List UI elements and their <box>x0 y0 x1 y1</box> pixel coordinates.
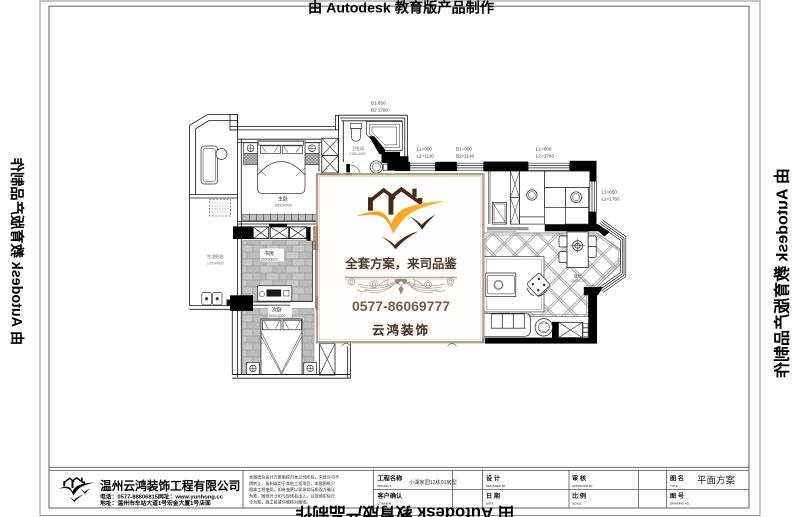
svg-text:全套方案，来司品鉴: 全套方案，来司品鉴 <box>344 256 457 271</box>
svg-text:2600x3000: 2600x3000 <box>261 258 278 262</box>
svg-text:次卧: 次卧 <box>272 307 282 314</box>
svg-text:限本工程使用。如有变更以现场实际和双方确认: 限本工程使用。如有变更以现场实际和双方确认 <box>249 486 335 492</box>
svg-text:温州云鸿装饰工程有限公司: 温州云鸿装饰工程有限公司 <box>100 479 240 493</box>
svg-text:由 Autodesk 教育版产品制作: 由 Autodesk 教育版产品制作 <box>308 0 494 17</box>
svg-text:APPROVED BY: APPROVED BY <box>572 484 593 488</box>
svg-text:由 Autodesk 教育版产品制作: 由 Autodesk 教育版产品制作 <box>773 168 792 378</box>
svg-text:B2 1780: B2 1780 <box>371 108 389 113</box>
svg-text:1300x4000: 1300x4000 <box>207 262 224 266</box>
svg-text:小湖家园12栋01房型: 小湖家园12栋01房型 <box>409 478 457 486</box>
svg-text:本图纸及设计方案版权归本公司所有，未经许可不: 本图纸及设计方案版权归本公司所有，未经许可不 <box>249 474 339 480</box>
svg-text:平面方案: 平面方案 <box>697 475 736 487</box>
svg-text:L2=1760: L2=1760 <box>602 197 620 202</box>
svg-text:2900x3300: 2900x3300 <box>269 314 286 318</box>
svg-text:2150x1600: 2150x1600 <box>350 152 366 156</box>
svg-text:书房: 书房 <box>264 250 274 257</box>
svg-text:L1=900: L1=900 <box>417 147 433 152</box>
svg-text:图 名: 图 名 <box>670 475 684 483</box>
svg-text:客户确认: 客户确认 <box>377 492 404 500</box>
svg-text:日 期: 日 期 <box>486 492 500 500</box>
svg-text:比 例: 比 例 <box>572 492 586 500</box>
svg-text:B1=900: B1=900 <box>456 147 472 152</box>
svg-text:工程名称: 工程名称 <box>378 475 404 483</box>
svg-text:主卧: 主卧 <box>278 196 288 203</box>
svg-text:为准，图纸尺寸如与现场有出入，以现场实际尺: 为准，图纸尺寸如与现场有出入，以现场实际尺 <box>249 492 335 498</box>
svg-text:PROJECT: PROJECT <box>378 484 392 488</box>
svg-text:DESIGNED BY: DESIGNED BY <box>486 484 506 488</box>
svg-text:生活阳台: 生活阳台 <box>207 253 224 260</box>
svg-text:由 Autodesk 教育版产品制作: 由 Autodesk 教育版产品制作 <box>295 504 514 517</box>
svg-text:卫生间: 卫生间 <box>352 145 364 151</box>
svg-text:DRAWING NO: DRAWING NO <box>670 501 690 505</box>
svg-text:L2=1110: L2=1110 <box>417 154 435 159</box>
svg-text:DATE: DATE <box>486 501 494 505</box>
svg-text:0577-86069777: 0577-86069777 <box>352 298 450 314</box>
svg-text:电话：0577-88806815网址：www.yunhong: 电话：0577-88806815网址：www.yunhong.cc <box>100 492 224 500</box>
svg-text:B2=1140: B2=1140 <box>456 154 475 159</box>
svg-text:由 Autodesk 教育版产品制作: 由 Autodesk 教育版产品制作 <box>8 157 26 345</box>
svg-text:TITLE: TITLE <box>670 484 678 488</box>
svg-text:地址：温州市车站大道1号宏金大厦1号店面: 地址：温州市车站大道1号宏金大厦1号店面 <box>100 499 211 507</box>
svg-text:CONFIRM: CONFIRM <box>378 501 392 505</box>
svg-text:餐厅: 餐厅 <box>574 273 582 279</box>
svg-text:图 号: 图 号 <box>670 492 684 500</box>
svg-text:L1=650: L1=650 <box>602 190 618 195</box>
svg-text:2600x3300: 2600x3300 <box>571 279 587 283</box>
svg-text:3900x4950: 3900x4950 <box>275 204 293 208</box>
svg-text:L2=1760: L2=1760 <box>536 154 554 159</box>
svg-text:寸为准，施工前请仔细核对图纸。: 寸为准，施工前请仔细核对图纸。 <box>249 499 310 505</box>
svg-text:B1 650: B1 650 <box>371 101 386 106</box>
svg-text:得转让、复制或用于其他工程项目，本套图纸只: 得转让、复制或用于其他工程项目，本套图纸只 <box>249 480 335 486</box>
svg-text:L1=600: L1=600 <box>536 147 552 152</box>
svg-text:云鸿装饰: 云鸿装饰 <box>372 323 430 338</box>
svg-text:设 计: 设 计 <box>486 475 501 483</box>
svg-text:SCALE: SCALE <box>572 501 582 505</box>
svg-text:审 核: 审 核 <box>572 475 587 483</box>
